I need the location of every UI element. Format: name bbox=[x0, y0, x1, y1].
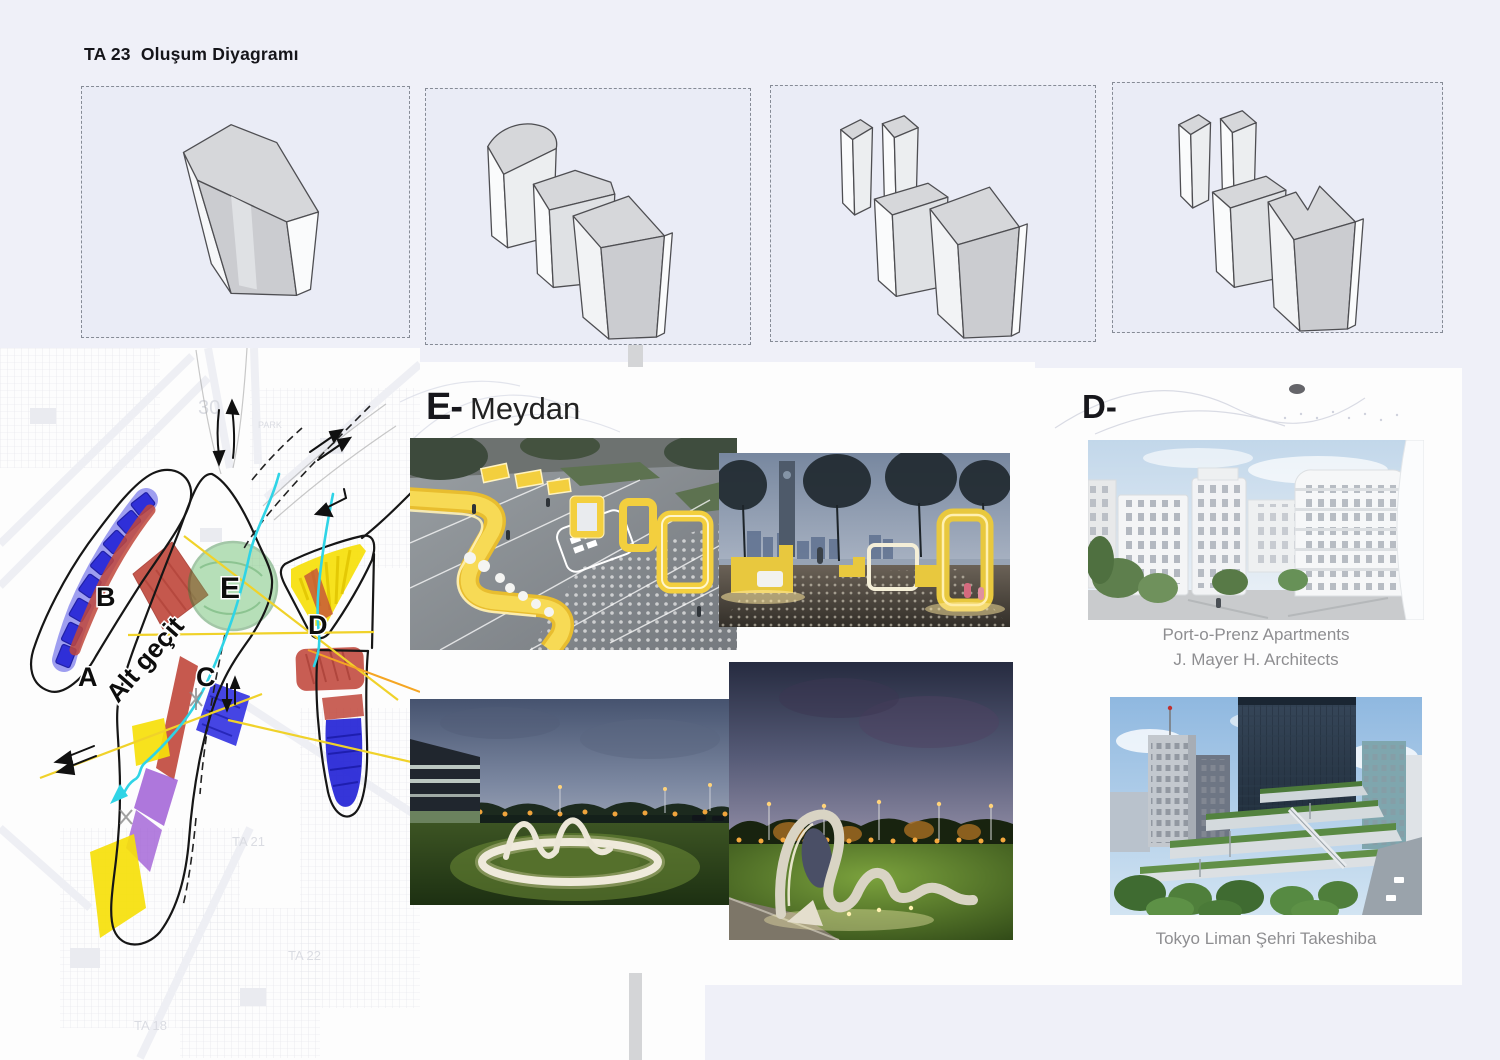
page-title: TA 23 Oluşum Diyagramı bbox=[84, 44, 299, 65]
formation-stage-3 bbox=[770, 85, 1096, 342]
site-plan-map: 30 PARK TA 21 TA 22 TA 18 bbox=[0, 348, 420, 1060]
formation-stage-1 bbox=[81, 86, 410, 338]
massing-diagram-2 bbox=[426, 89, 750, 344]
zone-label-a: A bbox=[78, 662, 98, 692]
caption-apartments-line1: Port-o-Prenz Apartments bbox=[1088, 622, 1424, 647]
section-e-heading: E-Meydan bbox=[426, 386, 580, 429]
map-faint-label-ta18: TA 18 bbox=[134, 1018, 167, 1033]
section-d-heading: D- bbox=[1082, 388, 1117, 426]
massing-diagram-1 bbox=[82, 87, 409, 337]
photo-meydan-aerial bbox=[410, 438, 737, 650]
map-ink-dot bbox=[1289, 384, 1305, 394]
section-e-title: Meydan bbox=[470, 391, 580, 426]
photo-apartments bbox=[1088, 440, 1424, 620]
map-faint-label-ta21: TA 21 bbox=[232, 834, 265, 849]
map-faint-label-park: PARK bbox=[258, 420, 282, 430]
photo-meydan-night-ring bbox=[410, 699, 733, 905]
zone-label-d: D bbox=[308, 610, 328, 640]
zone-label-e: E bbox=[220, 572, 240, 605]
caption-tokyo: Tokyo Liman Şehri Takeshiba bbox=[1110, 926, 1422, 951]
gray-bar-bottom bbox=[629, 973, 642, 1060]
massing-diagram-4 bbox=[1113, 83, 1442, 332]
photo-meydan-night-ribbon bbox=[729, 662, 1013, 940]
caption-apartments: Port-o-Prenz Apartments J. Mayer H. Arch… bbox=[1088, 622, 1424, 672]
section-e-letter: E- bbox=[426, 386, 462, 428]
photo-meydan-dusk bbox=[719, 453, 1010, 627]
bottom-strip-bg bbox=[420, 985, 705, 1060]
zone-label-c: C bbox=[196, 662, 216, 692]
massing-diagram-3 bbox=[771, 86, 1095, 341]
formation-stage-4 bbox=[1112, 82, 1443, 333]
zone-label-b: B bbox=[96, 582, 116, 612]
caption-tokyo-line: Tokyo Liman Şehri Takeshiba bbox=[1110, 926, 1422, 951]
map-faint-label-30: 30 bbox=[198, 397, 220, 419]
map-faint-label-ta22: TA 22 bbox=[288, 948, 321, 963]
presentation-page: TA 23 Oluşum Diyagramı bbox=[0, 0, 1500, 1060]
photo-tokyo-takeshiba bbox=[1110, 697, 1422, 915]
formation-stage-2 bbox=[425, 88, 751, 345]
caption-apartments-line2: J. Mayer H. Architects bbox=[1088, 647, 1424, 672]
